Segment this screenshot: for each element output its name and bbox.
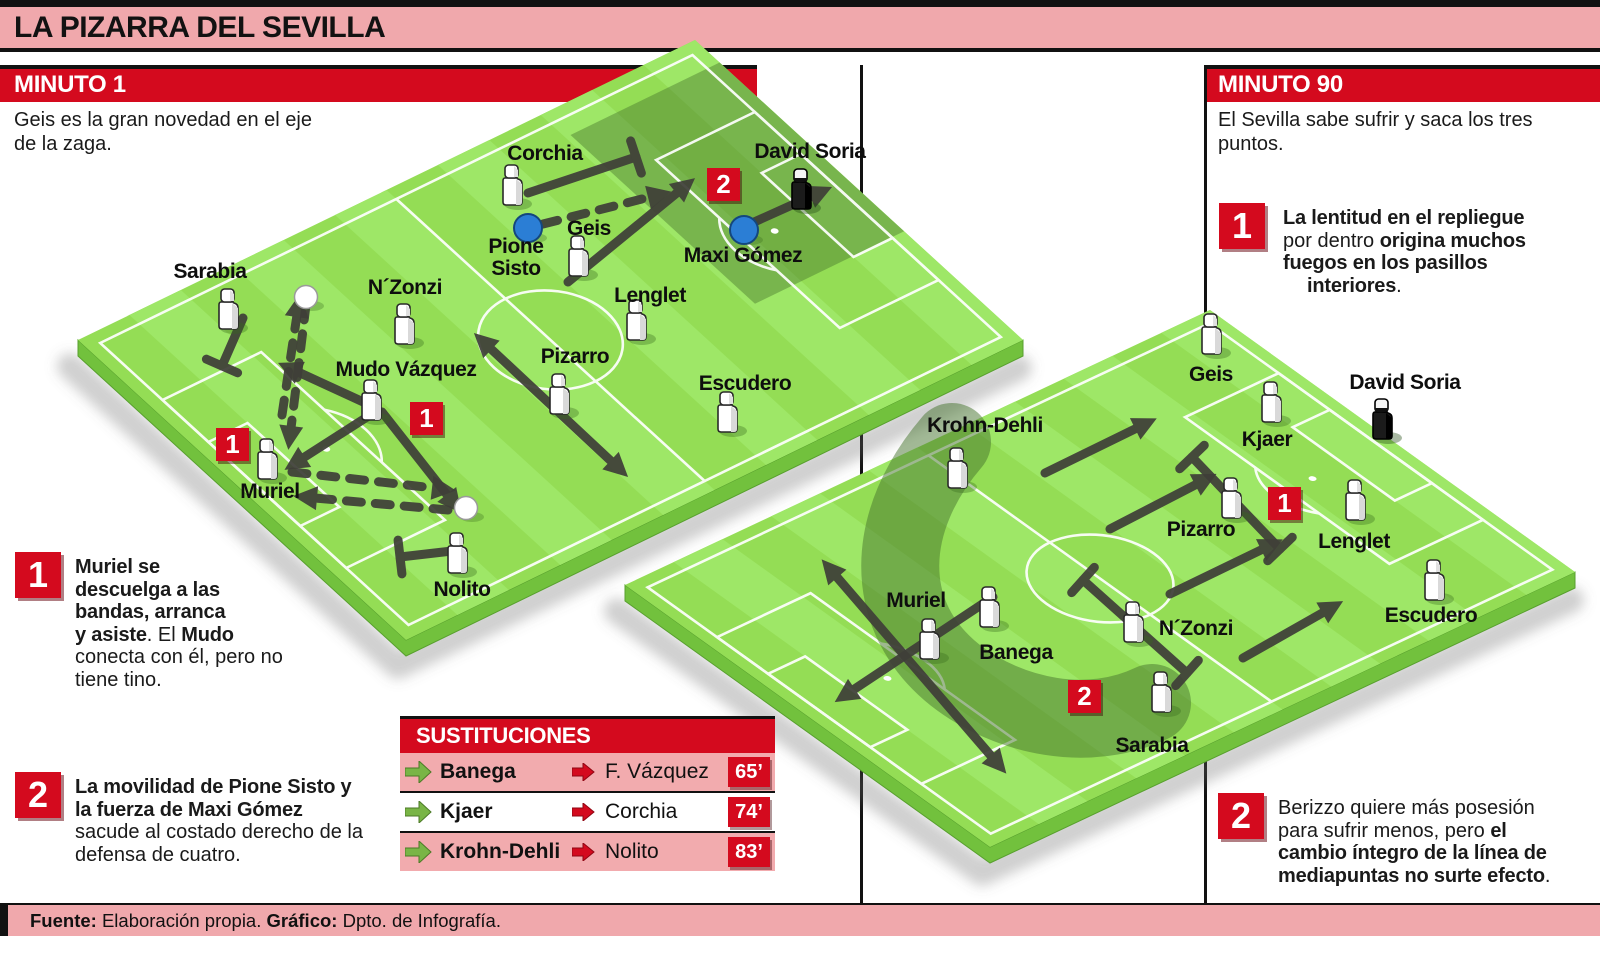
- text-line: puntos.: [1218, 132, 1588, 156]
- player-label: Geis: [1189, 364, 1233, 386]
- player-label: Sarabia: [1115, 735, 1188, 757]
- text-segment: para sufrir menos, pero: [1278, 820, 1490, 842]
- player-label: Pizarro: [541, 346, 609, 368]
- text-line: bandas, arranca: [75, 601, 375, 624]
- footer-left-block: [0, 903, 8, 936]
- text-line: Muriel se: [75, 556, 375, 579]
- text-line: interiores.: [1283, 275, 1593, 298]
- text-line: cambio íntegro de la línea de: [1278, 842, 1598, 865]
- text-line: Geis es la gran novedad en el eje: [14, 108, 374, 132]
- text-segment: mediapuntas no surte efecto: [1278, 865, 1545, 887]
- sub-in-arrow-icon: [405, 841, 432, 863]
- player-label: Geis: [567, 218, 611, 240]
- player-label: Lenglet: [614, 285, 686, 307]
- player-label: Lenglet: [1318, 531, 1390, 553]
- text-segment: fuegos en los pasillos: [1283, 252, 1488, 274]
- text-segment: sacude al costado derecho de la: [75, 821, 363, 843]
- note-marker: 2: [1218, 793, 1264, 839]
- text-segment: el: [1490, 820, 1506, 842]
- text-line: y asiste. El Mudo: [75, 624, 375, 647]
- text-segment: La lentitud en el repliegue: [1283, 207, 1524, 229]
- player-label: Banega: [979, 642, 1052, 664]
- player-label: David Soria: [1349, 372, 1460, 394]
- footer-credit: Fuente: Elaboración propia. Gráfico: Dpt…: [8, 905, 1600, 936]
- text-segment: La movilidad de Pione Sisto y: [75, 776, 352, 798]
- subs-row: Krohn-Dehli Nolito 83’: [400, 833, 775, 871]
- text-segment: .: [1545, 865, 1551, 887]
- player-label: N´Zonzi: [368, 277, 442, 299]
- text-line: sacude al costado derecho de la: [75, 821, 405, 844]
- player-label: David Soria: [754, 141, 865, 163]
- text-segment: cambio íntegro de la línea de: [1278, 842, 1547, 864]
- player-label: Muriel: [886, 590, 945, 612]
- text-segment: conecta con él, pero no: [75, 646, 283, 668]
- sub-minute-badge: 65’: [728, 757, 770, 787]
- text-line: tiene tino.: [75, 669, 375, 692]
- text-line: para sufrir menos, pero el: [1278, 820, 1598, 843]
- subs-row: Kjaer Corchia 74’: [400, 793, 775, 833]
- text-segment: defensa de cuatro.: [75, 844, 241, 866]
- text-line: defensa de cuatro.: [75, 844, 405, 867]
- subs-header-bar: SUSTITUCIONES: [400, 719, 775, 753]
- text-segment: Fuente:: [30, 910, 97, 931]
- sub-player-in: F. Vázquez: [605, 753, 709, 791]
- text-segment: Mudo: [181, 624, 234, 646]
- text-segment: interiores: [1307, 275, 1396, 297]
- text-segment: Berizzo quiere más posesión: [1278, 797, 1535, 819]
- player-label: N´Zonzi: [1159, 618, 1233, 640]
- text-segment: tiene tino.: [75, 669, 162, 691]
- text-line: conecta con él, pero no: [75, 646, 375, 669]
- substitutions-table: SUSTITUCIONES Banega F. Vázquez 65’ Kjae…: [400, 716, 775, 868]
- pitch-note-marker: 2: [1068, 680, 1101, 713]
- text-segment: .: [1396, 275, 1402, 297]
- sub-out-arrow-icon: [572, 763, 595, 781]
- note-marker: 2: [15, 772, 61, 818]
- sub-player-in: Nolito: [605, 833, 659, 871]
- text-segment: Dpto. de Infografía.: [337, 910, 501, 931]
- sub-out-arrow-icon: [572, 803, 595, 821]
- text-segment: Muriel se: [75, 556, 160, 578]
- text-segment: por dentro: [1283, 230, 1380, 252]
- player-label: Pione Sisto: [488, 236, 543, 280]
- player-label: Maxi Gómez: [684, 245, 803, 267]
- sub-player-out: Krohn-Dehli: [440, 833, 560, 871]
- footer-bar: Fuente: Elaboración propia. Gráfico: Dpt…: [8, 905, 1600, 936]
- text-line: fuegos en los pasillos: [1283, 252, 1593, 275]
- minuto1-intro: Geis es la gran novedad en el ejede la z…: [14, 108, 374, 156]
- sub-in-arrow-icon: [405, 761, 432, 783]
- player-label: Sarabia: [173, 261, 246, 283]
- player-label: Kjaer: [1242, 429, 1293, 451]
- player-label: Nolito: [433, 579, 490, 601]
- subs-row: Banega F. Vázquez 65’: [400, 753, 775, 793]
- pitch-note-marker: 1: [1268, 487, 1301, 520]
- player-label: Mudo Vázquez: [335, 359, 476, 381]
- text-line: mediapuntas no surte efecto.: [1278, 865, 1598, 888]
- text-line: El Sevilla sabe sufrir y saca los tres: [1218, 108, 1588, 132]
- minuto90-intro: El Sevilla sabe sufrir y saca los trespu…: [1218, 108, 1588, 156]
- sub-player-out: Banega: [440, 753, 516, 791]
- text-segment: . El: [147, 624, 181, 646]
- sub-in-arrow-icon: [405, 801, 432, 823]
- pitch-note-marker: 1: [410, 402, 443, 435]
- text-line: descuelga a las: [75, 579, 375, 602]
- text-segment: bandas, arranca: [75, 601, 225, 623]
- sub-player-out: Kjaer: [440, 793, 493, 831]
- player-label: Muriel: [240, 481, 299, 503]
- player-label: Krohn-Dehli: [927, 415, 1043, 437]
- text-segment: y asiste: [75, 624, 147, 646]
- note-text: La movilidad de Pione Sisto yla fuerza d…: [75, 776, 405, 866]
- infographic-stage: LA PIZARRA DEL SEVILLA MINUTO 1 MINUTO 9…: [0, 0, 1600, 964]
- note-text: Muriel sedescuelga a lasbandas, arrancay…: [75, 556, 375, 691]
- pitch-note-marker: 2: [707, 168, 740, 201]
- sub-out-arrow-icon: [572, 843, 595, 861]
- text-line: La lentitud en el repliegue: [1283, 207, 1593, 230]
- player-label: Corchia: [507, 143, 582, 165]
- sub-player-in: Corchia: [605, 793, 677, 831]
- text-line: La movilidad de Pione Sisto y: [75, 776, 405, 799]
- pitch-note-marker: 1: [216, 428, 249, 461]
- text-line: de la zaga.: [14, 132, 374, 156]
- note-marker: 1: [15, 552, 61, 598]
- text-line: Berizzo quiere más posesión: [1278, 797, 1598, 820]
- text-line: por dentro origina muchos: [1283, 230, 1593, 253]
- text-line: la fuerza de Maxi Gómez: [75, 799, 405, 822]
- note-marker: 1: [1219, 203, 1265, 249]
- player-label: Pizarro: [1167, 519, 1235, 541]
- sub-minute-badge: 83’: [728, 837, 770, 867]
- text-segment: descuelga a las: [75, 579, 220, 601]
- player-label: Escudero: [699, 373, 792, 395]
- note-text: Berizzo quiere más posesiónpara sufrir m…: [1278, 797, 1598, 887]
- player-label: Escudero: [1385, 605, 1478, 627]
- sub-minute-badge: 74’: [728, 797, 770, 827]
- text-segment: Elaboración propia.: [97, 910, 267, 931]
- subs-header-label: SUSTITUCIONES: [400, 719, 775, 753]
- text-segment: origina muchos: [1380, 230, 1526, 252]
- text-segment: la fuerza de Maxi Gómez: [75, 799, 303, 821]
- text-segment: Gráfico:: [267, 910, 338, 931]
- note-text: La lentitud en el replieguepor dentro or…: [1283, 207, 1593, 297]
